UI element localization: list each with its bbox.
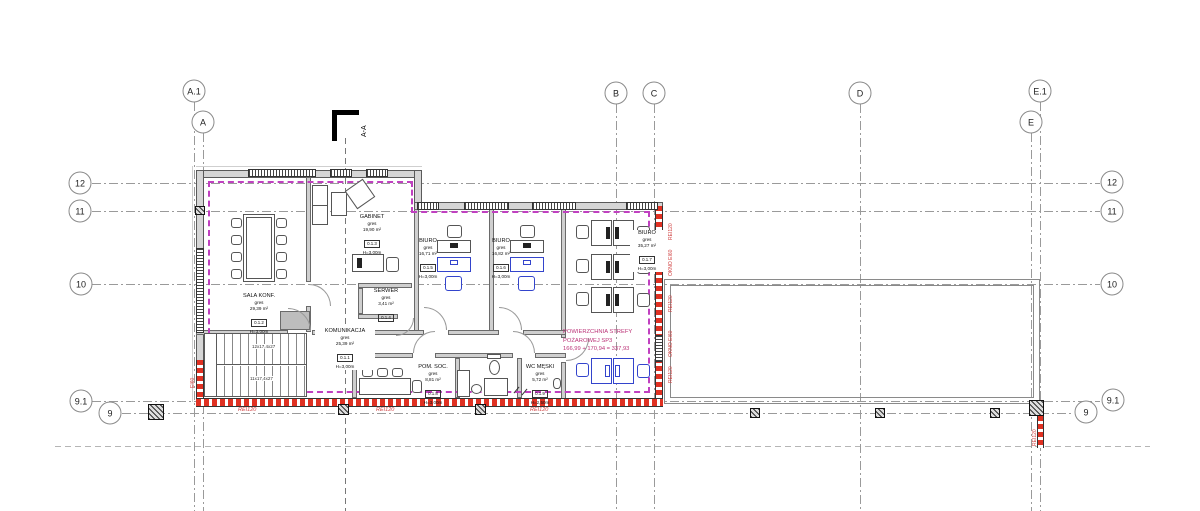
conference-table-inner <box>246 217 272 279</box>
room-label-serwer: SERWER gres 3,41 m² 0.1.4 <box>356 288 416 324</box>
axis-label: 9 <box>1083 407 1088 417</box>
fire-rating-rei120-bottom: REI120 <box>238 407 256 413</box>
fire-zone-note-line1: POWIERZCHNIA STREFY <box>563 328 632 337</box>
axis-bubble-91-left: 9.1 <box>70 390 93 413</box>
door-arc-biuro2 <box>499 307 522 330</box>
fire-zone-note-line2: POŻAROWEJ SP3 <box>563 337 632 346</box>
room-name: BIURO <box>411 238 445 245</box>
section-marker-label: A-A <box>361 125 368 137</box>
sofa <box>312 185 328 225</box>
office-chair <box>637 293 650 307</box>
monitor <box>615 261 619 273</box>
room-tag: 0.1.2 <box>251 319 267 327</box>
axis-bubble-12-right: 12 <box>1101 171 1124 194</box>
office-chair-planned <box>518 276 535 291</box>
chair <box>231 218 242 228</box>
wc-cabinet <box>457 370 470 397</box>
room-label-wc-meski: WC MĘSKI gres 5,72 m² 0.1.9 H=2,50m <box>520 364 560 406</box>
room-name: SALA KONF. <box>229 293 289 300</box>
door-arc-biuro1 <box>424 307 447 330</box>
fire-rating-okno: OKNO EI60 <box>668 331 674 357</box>
room-height: H=2,50m <box>520 400 560 406</box>
fire-rating-rei120-bottom: REI120 <box>530 407 548 413</box>
fire-wall-left-segment <box>196 360 204 398</box>
wall-biuro2-openoffice-a <box>561 209 566 338</box>
office-chair <box>576 225 589 239</box>
section-marker-bar-v <box>332 110 337 141</box>
washbasin <box>471 384 482 394</box>
wc-counter <box>484 378 508 396</box>
axis-bubble-d-top: D <box>849 82 872 105</box>
column-3 <box>750 408 760 418</box>
room-name: BIURO <box>484 238 518 245</box>
axis-label: 9.1 <box>75 396 88 406</box>
wall-corridor-bottom-3 <box>535 353 566 358</box>
monitor <box>615 294 619 306</box>
axis-bubble-a1-top: A.1 <box>183 80 206 103</box>
window-top-3 <box>366 169 388 177</box>
fire-rating-okno: OKNO EI60 <box>668 250 674 276</box>
column-1 <box>338 404 349 415</box>
room-tag: 0.1.1 <box>337 354 353 362</box>
window-top-4 <box>417 202 439 210</box>
room-label-komunikacja: KOMUNIKACJA gres 25,39 m² 0.1.1 H=3,00m <box>315 328 375 370</box>
monitor <box>615 227 619 239</box>
fire-zone-note-line3: 166,99 + 170,94 = 337,93 <box>563 345 632 354</box>
window-left-wall <box>196 248 204 333</box>
axis-label: A <box>200 117 206 127</box>
door-arc-gabinet <box>309 284 331 306</box>
axis-label: 9 <box>107 408 112 418</box>
axis-label: 12 <box>1107 177 1117 187</box>
room-label-biuro-1: BIURO gres 16,71 m² 0.1.5 H=3,00m <box>411 238 445 280</box>
stair-flight-label-upper: 12x17,4x27 <box>252 344 275 349</box>
toilet-bowl <box>489 360 500 375</box>
room-tag: 0.1.5 <box>420 264 436 272</box>
room-name: SERWER <box>356 288 416 295</box>
adjacent-wing-inner <box>670 285 1034 398</box>
floor-plan-canvas: A.1 A B C D E.1 E 12 11 10 9.1 9 12 11 1… <box>0 0 1200 511</box>
stair-treads-upper <box>216 334 306 364</box>
office-chair <box>447 225 462 238</box>
wall-corridor-bottom-2 <box>435 353 513 358</box>
chair <box>231 252 242 262</box>
axis-label: B <box>613 88 619 98</box>
fire-rating-ei60-left: EI60 <box>190 378 196 388</box>
room-name: KOMUNIKACJA <box>315 328 375 335</box>
room-height: H=3,00m <box>342 250 402 256</box>
office-chair-planned <box>637 364 650 378</box>
grid-line-a1 <box>194 102 195 511</box>
window-top-2 <box>330 169 352 177</box>
window-top-7 <box>626 202 658 210</box>
room-height: H=3,00m <box>229 329 289 335</box>
grid-line-12 <box>92 183 1100 184</box>
monitor <box>450 243 458 248</box>
axis-bubble-10-right: 10 <box>1101 273 1124 296</box>
chair <box>276 218 287 228</box>
room-height: H=3,00m <box>315 364 375 370</box>
zone-boundary-step <box>411 181 413 213</box>
room-tag: 0.1.8 <box>425 390 441 398</box>
column-grid-d <box>875 408 885 418</box>
fire-zone-note: POWIERZCHNIA STREFY POŻAROWEJ SP3 166,99… <box>563 328 632 354</box>
monitor-planned <box>523 260 531 265</box>
axis-label: 12 <box>75 178 85 188</box>
room-label-pom-soc: POM. SOC. gres 8,81 m² 0.1.8 H=3,00m <box>413 364 453 406</box>
room-tag: 0.1.7 <box>639 256 655 264</box>
room-height: H=3,00m <box>411 274 445 280</box>
room-label-gabinet: GABINET gres 19,90 m² 0.1.3 H=3,00m <box>342 214 402 256</box>
chair <box>276 235 287 245</box>
axis-label: E <box>1028 117 1034 127</box>
chair <box>231 269 242 279</box>
room-name: BIURO <box>630 230 664 237</box>
column-grid-e <box>1029 400 1044 416</box>
fire-rating-rei120: REI120 <box>668 295 674 312</box>
stair-mid-line <box>216 364 306 365</box>
axis-label: 9.1 <box>1107 395 1120 405</box>
room-tag: 0.1.4 <box>378 314 394 322</box>
window-top-1 <box>248 169 316 177</box>
axis-label: C <box>651 88 658 98</box>
chair <box>276 252 287 262</box>
stair-flight-label-lower: 11x17,4x27 <box>250 376 273 381</box>
axis-label: 10 <box>76 279 86 289</box>
office-chair-planned <box>576 363 589 377</box>
room-tag: 0.1.9 <box>532 390 548 398</box>
wall-corridor-top-4 <box>523 330 566 335</box>
fire-rating-rei120: REI120 <box>668 366 674 383</box>
axis-bubble-e-top: E <box>1020 111 1043 134</box>
fire-rating-rei120: REI120 <box>668 223 674 240</box>
grid-line-e1 <box>1040 102 1041 511</box>
fire-rating-rei120-bottom: REI120 <box>376 407 394 413</box>
axis-label: A.1 <box>187 86 201 96</box>
room-label-biuro-2: BIURO gres 16,82 m² 0.1.6 H=3,00m <box>484 238 518 280</box>
window-firewall-2 <box>655 335 663 362</box>
axis-bubble-11-right: 11 <box>1101 200 1124 223</box>
office-chair <box>576 292 589 306</box>
axis-label: 11 <box>1107 206 1116 216</box>
axis-bubble-10-left: 10 <box>70 273 93 296</box>
office-chair <box>520 225 535 238</box>
axis-bubble-11-left: 11 <box>69 200 92 223</box>
axis-bubble-e1-top: E.1 <box>1029 80 1052 103</box>
wall-offset-line-left <box>192 166 193 402</box>
stair-landing-line <box>216 333 217 397</box>
monitor <box>606 261 610 273</box>
wall-biuro2-openoffice-b <box>561 362 566 400</box>
chair <box>231 235 242 245</box>
room-tag: 0.1.6 <box>493 264 509 272</box>
column-grid-11-left <box>195 206 205 215</box>
axis-bubble-91-right: 9.1 <box>1102 389 1125 412</box>
axis-label: 11 <box>75 206 84 216</box>
wall-corridor-top-3 <box>448 330 499 335</box>
wall-offset-line-top <box>196 166 422 167</box>
window-top-5 <box>464 202 509 210</box>
zone-boundary-top-2 <box>411 211 650 213</box>
coffee-table <box>331 192 347 216</box>
axis-bubble-9-left: 9 <box>99 402 122 425</box>
axis-label: D <box>857 88 864 98</box>
axis-bubble-9-right: 9 <box>1075 401 1098 424</box>
wall-salakonf-gabinet-a <box>306 177 311 282</box>
column-2 <box>475 404 486 415</box>
boundary-dashed-line <box>55 446 1150 447</box>
axis-bubble-b-top: B <box>605 82 628 105</box>
room-name: WC MĘSKI <box>520 364 560 371</box>
room-name: GABINET <box>342 214 402 221</box>
monitor <box>523 243 531 248</box>
zone-boundary-top-1 <box>208 181 413 183</box>
grid-line-9 <box>122 413 1074 414</box>
axis-bubble-a-top: A <box>192 111 215 134</box>
chair <box>392 368 403 377</box>
stair-treads-lower <box>216 366 306 396</box>
social-room-table <box>359 378 411 395</box>
gabinet-pc <box>357 258 362 268</box>
room-height: H=3,00m <box>630 266 664 272</box>
gabinet-chair <box>386 257 399 272</box>
axis-bubble-c-top: C <box>643 82 666 105</box>
room-tag: 0.1.3 <box>364 240 380 248</box>
monitor <box>606 294 610 306</box>
monitor-planned <box>450 260 458 265</box>
room-label-sala-konf: SALA KONF. gres 29,39 m² 0.1.2 H=3,00m <box>229 293 289 335</box>
axis-bubble-12-left: 12 <box>69 172 92 195</box>
toilet-tank <box>487 354 501 359</box>
room-name: POM. SOC. <box>413 364 453 371</box>
column-4 <box>990 408 1000 418</box>
room-height: H=3,00m <box>413 400 453 406</box>
monitor <box>606 227 610 239</box>
office-chair-planned <box>445 276 462 291</box>
monitor-planned <box>615 365 620 377</box>
room-label-biuro-open: BIURO gres 35,27 m² 0.1.7 H=3,00m <box>630 230 664 272</box>
fire-wall-wing-stub <box>1037 416 1044 448</box>
monitor-planned <box>605 365 610 377</box>
office-chair <box>576 259 589 273</box>
axis-label: 10 <box>1107 279 1117 289</box>
window-top-6 <box>532 202 576 210</box>
chair <box>377 368 388 377</box>
chair <box>276 269 287 279</box>
column-grid-a <box>148 404 164 420</box>
room-height: H=3,00m <box>484 274 518 280</box>
axis-label: E.1 <box>1033 86 1047 96</box>
fire-rating-rei120-wing: REI120 <box>1032 429 1038 446</box>
